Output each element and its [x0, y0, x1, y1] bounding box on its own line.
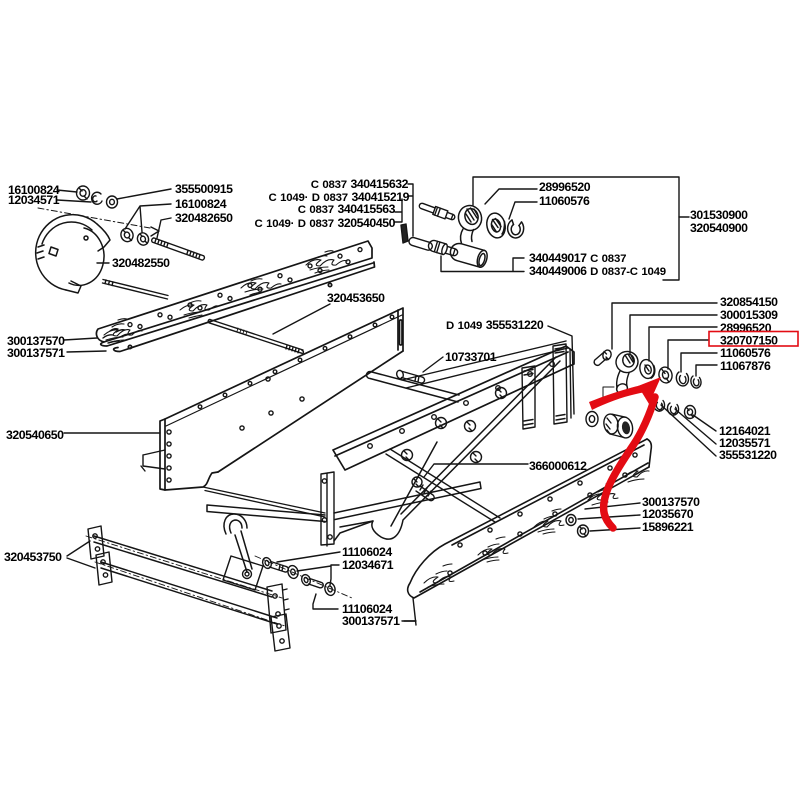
svg-text:11060576: 11060576: [720, 346, 771, 360]
svg-text:12035670: 12035670: [642, 507, 694, 521]
svg-text:16100824: 16100824: [175, 197, 227, 211]
svg-text:355500915: 355500915: [175, 182, 233, 196]
svg-text:11060576: 11060576: [539, 194, 590, 208]
svg-text:15896221: 15896221: [642, 520, 694, 534]
svg-text:340449006 D 0837-C 1049: 340449006 D 0837-C 1049: [529, 264, 666, 278]
svg-text:11067876: 11067876: [720, 359, 771, 373]
svg-text:300015309: 300015309: [720, 308, 778, 322]
svg-text:320540900: 320540900: [690, 221, 748, 235]
svg-text:366000612: 366000612: [529, 459, 587, 473]
svg-text:320482550: 320482550: [112, 256, 170, 270]
svg-text:301530900: 301530900: [690, 208, 748, 222]
svg-text:C 0837 340415632: C 0837 340415632: [311, 177, 409, 191]
svg-text:12034571: 12034571: [8, 193, 60, 207]
svg-text:320854150: 320854150: [720, 295, 778, 309]
svg-text:320453750: 320453750: [4, 550, 62, 564]
svg-text:C 1049· D 0837 320540450: C 1049· D 0837 320540450: [255, 216, 396, 230]
svg-text:320482650: 320482650: [175, 211, 233, 225]
svg-text:340449017 C 0837: 340449017 C 0837: [529, 251, 626, 265]
svg-text:300137571: 300137571: [342, 614, 400, 628]
svg-text:320540650: 320540650: [6, 428, 64, 442]
svg-text:11106024: 11106024: [342, 545, 392, 559]
svg-text:28996520: 28996520: [539, 180, 591, 194]
svg-text:D 1049 355531220: D 1049 355531220: [446, 318, 544, 332]
svg-text:10733701: 10733701: [445, 350, 497, 364]
svg-text:320453650: 320453650: [327, 291, 385, 305]
svg-text:12034671: 12034671: [342, 558, 394, 572]
svg-text:C 0837 340415563: C 0837 340415563: [298, 202, 396, 216]
svg-text:355531220: 355531220: [719, 448, 777, 462]
svg-text:300137571: 300137571: [7, 346, 65, 360]
